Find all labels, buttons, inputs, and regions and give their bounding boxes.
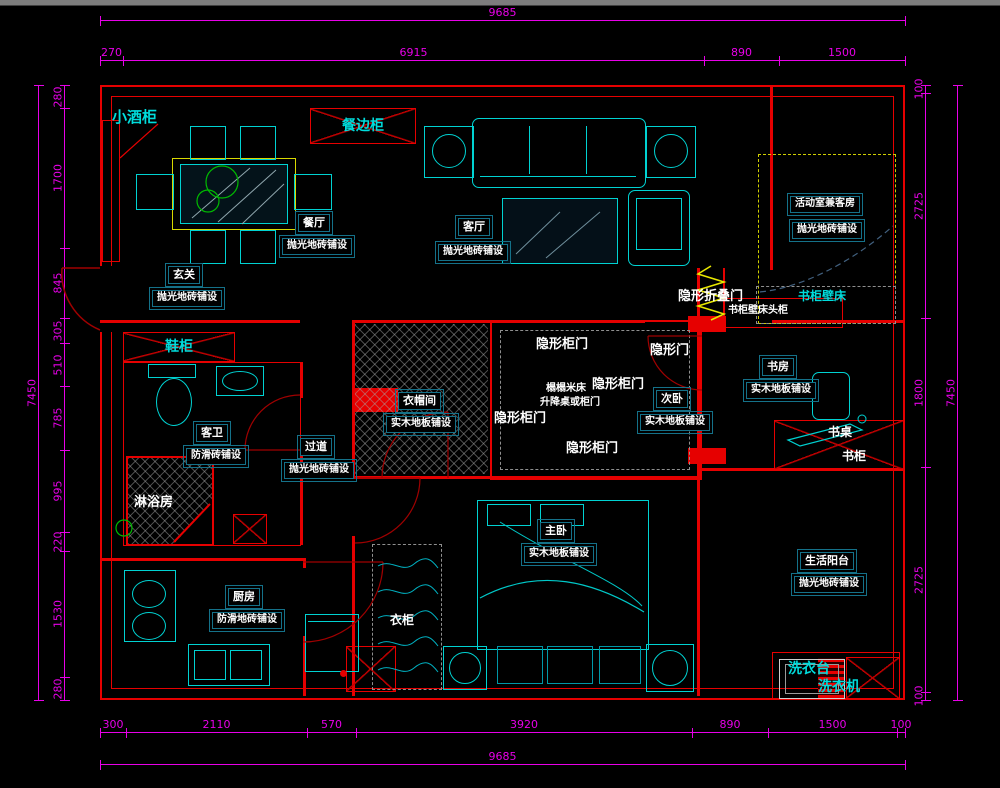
- wine-cabinet-outline: [102, 120, 120, 262]
- room-label-dining: 餐厅: [298, 214, 330, 232]
- dining-chair: [240, 230, 276, 264]
- dim-bottom-seg: 890: [692, 732, 768, 733]
- floor-label-hall: 抛光地砖铺设: [284, 462, 354, 479]
- dim-text: 9685: [489, 7, 517, 18]
- table-lamp: [432, 134, 466, 168]
- dim-bottom-seg: 100: [897, 732, 905, 733]
- wall: [100, 558, 305, 561]
- kitchen-cabinet: [305, 614, 359, 672]
- wall-block: [688, 448, 726, 464]
- floor-label-balcony: 抛光地砖铺设: [794, 576, 864, 593]
- dim-bottom-seg: 300: [100, 732, 126, 733]
- dining-chair: [294, 174, 332, 210]
- floor-label-entry: 抛光地砖铺设: [152, 290, 222, 307]
- dim-text: 100: [914, 79, 925, 100]
- dim-text: 1700: [53, 164, 64, 192]
- room-label-second-bed: 次卧: [656, 390, 688, 408]
- sofa-front-line: [480, 176, 636, 177]
- shoe-cabinet-label: 鞋柜: [165, 340, 193, 354]
- sideboard-label: 餐边柜: [342, 119, 384, 133]
- dim-text: 1530: [53, 600, 64, 628]
- dim-text: 270: [101, 47, 122, 58]
- nightstand-lamp: [449, 652, 481, 684]
- wall: [303, 558, 306, 568]
- dim-text: 2725: [914, 566, 925, 594]
- dim-left-seg: 845: [64, 248, 65, 318]
- dim-left-overall: 7450: [38, 85, 39, 700]
- dim-text: 570: [321, 719, 342, 730]
- dim-text: 305: [53, 320, 64, 341]
- dim-text: 220: [53, 531, 64, 552]
- room-label-balcony: 生活阳台: [800, 552, 854, 570]
- bookcase-label: 书柜: [842, 450, 866, 462]
- dim-text: 890: [731, 47, 752, 58]
- room-label-activity: 活动室兼客房: [790, 196, 860, 213]
- room-label-cloak: 衣帽间: [398, 392, 441, 410]
- dim-bottom-seg: 570: [307, 732, 356, 733]
- dining-chair: [190, 126, 226, 160]
- wall: [100, 320, 300, 323]
- wall-block: [688, 316, 726, 332]
- desk-label: 书桌: [828, 426, 852, 438]
- dim-left-seg: 220: [64, 532, 65, 551]
- bed-foot-cabinet: [599, 646, 641, 684]
- hidden-door-label: 隐形门: [650, 344, 689, 357]
- washing-machine-label: 洗衣机: [818, 680, 860, 694]
- dim-text: 3920: [510, 719, 538, 730]
- dim-text: 280: [53, 86, 64, 107]
- floor-label-study: 实木地板铺设: [746, 382, 816, 399]
- dim-text: 845: [53, 273, 64, 294]
- dining-chair: [240, 126, 276, 160]
- bed-foot-cabinet: [497, 646, 543, 684]
- dim-left-seg: 1530: [64, 551, 65, 677]
- bath-sink-basin: [222, 371, 258, 391]
- dim-bottom-seg: 2110: [126, 732, 307, 733]
- floor-label-cloak: 实木地板铺设: [386, 416, 456, 433]
- dim-left-seg: 280: [64, 677, 65, 700]
- room-label-living: 客厅: [458, 218, 490, 236]
- coffee-table: [502, 198, 618, 264]
- room-label-master: 主卧: [540, 522, 572, 540]
- dim-top-seg: 890: [704, 60, 779, 61]
- table-lamp: [654, 134, 688, 168]
- dim-text: 100: [891, 719, 912, 730]
- dim-text: 6915: [400, 47, 428, 58]
- bath-x-box: [233, 514, 267, 544]
- dim-text: 2110: [203, 719, 231, 730]
- dim-bottom-seg: 3920: [356, 732, 692, 733]
- bed-foot-cabinet: [547, 646, 593, 684]
- nightstand-lamp: [652, 650, 688, 686]
- sofa-cushion-line: [529, 126, 530, 174]
- dim-text: 785: [53, 408, 64, 429]
- dim-text: 7450: [946, 379, 957, 407]
- dim-text: 1800: [914, 379, 925, 407]
- desk-chair: [812, 372, 850, 420]
- pillow: [487, 504, 531, 526]
- shoe-cabinet: 鞋柜: [123, 332, 235, 362]
- dining-chair: [190, 230, 226, 264]
- dim-text: 2725: [914, 192, 925, 220]
- dim-bottom-seg: 1500: [768, 732, 897, 733]
- cabinet-knob: [340, 670, 347, 677]
- floor-label-second-bed: 实木地板铺设: [640, 414, 710, 431]
- hidden-cabinet-door-label: 隐形柜门: [536, 338, 588, 351]
- hidden-cabinet-door-label: 隐形柜门: [566, 442, 618, 455]
- dim-text: 890: [720, 719, 741, 730]
- cabinet-line: [308, 621, 354, 622]
- hidden-cabinet-door-label: 隐形柜门: [592, 378, 644, 391]
- wardrobe-label: 衣柜: [390, 614, 414, 626]
- room-label-kitchen: 厨房: [228, 588, 260, 606]
- dim-left-seg: 995: [64, 450, 65, 532]
- toilet-tank: [148, 364, 196, 378]
- dim-left-seg: 785: [64, 386, 65, 450]
- sofa-cushion-line: [586, 126, 587, 174]
- dim-text: 280: [53, 678, 64, 699]
- floor-label-master: 实木地板铺设: [524, 546, 594, 563]
- dim-text: 995: [53, 481, 64, 502]
- floor-label-kitchen: 防滑地砖铺设: [212, 612, 282, 629]
- toilet-bowl: [156, 378, 192, 426]
- wall-bed-headboard-label: 书柜壁床头柜: [728, 306, 788, 316]
- dining-chair: [136, 174, 174, 210]
- floor-label-dining: 抛光地砖铺设: [282, 238, 352, 255]
- dim-left-seg: 1700: [64, 108, 65, 248]
- floor-label-activity: 抛光地砖铺设: [792, 222, 862, 239]
- sideboard-cabinet: 餐边柜: [310, 108, 416, 144]
- dim-text: 1500: [828, 47, 856, 58]
- hidden-folding-door-label: 隐形折叠门: [678, 290, 743, 303]
- wall: [697, 478, 700, 696]
- dim-right-overall: 7450: [957, 85, 958, 700]
- room-label-study: 书房: [762, 358, 794, 376]
- floorplan-canvas: 9685 270 6915 890 1500 300 2110 570 3920…: [0, 0, 1000, 788]
- lift-table-label: 升降桌或柜门: [540, 398, 600, 408]
- room-label-entry: 玄关: [168, 266, 200, 284]
- dim-bottom-overall: 9685: [100, 764, 905, 765]
- dim-top-seg: 270: [100, 60, 123, 61]
- floor-label-bath: 防滑砖铺设: [186, 448, 246, 465]
- hidden-cabinet-door-label: 隐形柜门: [494, 412, 546, 425]
- dim-right-seg: 100: [925, 85, 926, 93]
- floor-label-living: 抛光地砖铺设: [438, 244, 508, 261]
- dim-right-seg: 1800: [925, 318, 926, 467]
- dim-right-seg: 100: [925, 692, 926, 700]
- dim-top-seg: 1500: [779, 60, 905, 61]
- laundry-counter-label: 洗衣台: [788, 662, 830, 676]
- dim-text: 100: [914, 686, 925, 707]
- room-label-hall: 过道: [300, 438, 332, 456]
- dim-right-seg: 2725: [925, 467, 926, 692]
- dim-text: 7450: [27, 379, 38, 407]
- entry-door-arc: [62, 268, 100, 330]
- dim-text: 1500: [819, 719, 847, 730]
- dining-table-glass: [180, 164, 288, 224]
- dim-left-seg: 280: [64, 85, 65, 108]
- dim-top-seg: 6915: [123, 60, 704, 61]
- dim-right-seg: 2725: [925, 93, 926, 318]
- sofa: [472, 118, 646, 188]
- shower-room-label: 淋浴房: [134, 496, 173, 509]
- bookcase-wall-bed-label: 书柜壁床: [798, 290, 846, 302]
- dim-text: 510: [53, 354, 64, 375]
- dim-text: 9685: [489, 751, 517, 762]
- dim-left-seg: 305: [64, 318, 65, 343]
- dim-left-seg: 510: [64, 343, 65, 386]
- dim-text: 300: [103, 719, 124, 730]
- burner: [132, 580, 166, 608]
- room-label-bath: 客卫: [196, 424, 228, 442]
- tatami-bed-label: 榻榻米床: [546, 384, 586, 394]
- sink-basin: [230, 650, 262, 680]
- armchair-seat: [636, 198, 682, 250]
- burner: [132, 612, 166, 640]
- dim-top-overall: 9685: [100, 20, 905, 21]
- wine-cabinet-label: 小酒柜: [112, 110, 157, 125]
- sink-basin: [194, 650, 226, 680]
